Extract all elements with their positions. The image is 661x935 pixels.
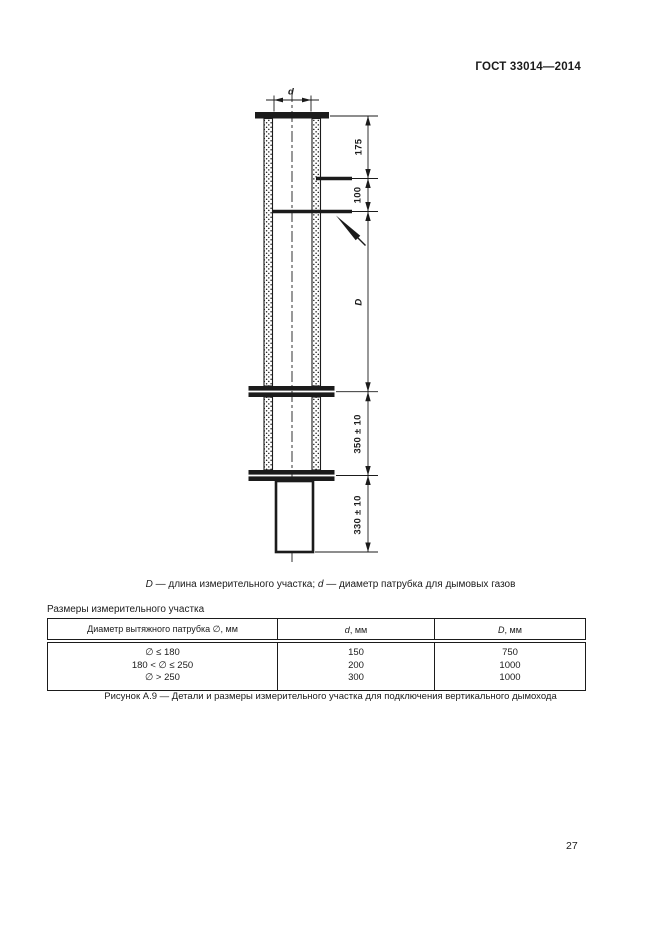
standard-number: ГОСТ 33014—2014 <box>475 61 581 73</box>
mid-flange-pair <box>249 386 335 397</box>
document-page: ГОСТ 33014—2014 <box>0 0 661 935</box>
cell-D: 750 <box>435 641 586 660</box>
cell-diameter: ∅ ≤ 180 <box>48 641 278 660</box>
measurement-section-drawing: d 175 100 D 350 ± 10 330 ± 10 <box>240 85 400 575</box>
leader-arrow <box>336 216 366 246</box>
cell-diameter: ∅ > 250 <box>48 672 278 690</box>
page-number: 27 <box>566 840 578 852</box>
outlet-pipe <box>276 481 313 552</box>
table-title: Размеры измерительного участка <box>47 604 204 615</box>
dim-label-350: 350 ± 10 <box>353 414 364 453</box>
top-flange <box>255 112 329 119</box>
bottom-flange-pair <box>249 470 335 481</box>
cell-D: 1000 <box>435 660 586 673</box>
drawing-legend: D — длина измерительного участка; d — ди… <box>0 579 661 590</box>
cell-d: 200 <box>278 660 435 673</box>
measurement-section-size-table: Диаметр вытяжного патрубка ∅, мм d, мм D… <box>47 618 586 691</box>
legend-var-D: D <box>146 579 153 590</box>
dim-label-D: D <box>353 298 364 305</box>
cell-d: 300 <box>278 672 435 690</box>
dim-label-330: 330 ± 10 <box>353 495 364 534</box>
table-row: 180 < ∅ ≤ 250 200 1000 <box>48 660 586 673</box>
table-row: ∅ > 250 300 1000 <box>48 672 586 690</box>
table-row: ∅ ≤ 180 150 750 <box>48 641 586 660</box>
header-D: D, мм <box>435 619 586 642</box>
dim-label-d: d <box>288 87 294 98</box>
measurement-section-diagram <box>240 85 400 575</box>
header-diameter: Диаметр вытяжного патрубка ∅, мм <box>48 619 278 642</box>
legend-text-d: — диаметр патрубка для дымовых газов <box>323 579 515 590</box>
legend-text-D: — длина измерительного участка; <box>153 579 318 590</box>
table-header-row: Диаметр вытяжного патрубка ∅, мм d, мм D… <box>48 619 586 642</box>
cell-D: 1000 <box>435 672 586 690</box>
cell-diameter: 180 < ∅ ≤ 250 <box>48 660 278 673</box>
header-d: d, мм <box>278 619 435 642</box>
dim-label-100: 100 <box>353 187 364 204</box>
figure-caption: Рисунок А.9 — Детали и размеры измерител… <box>0 691 661 702</box>
cell-d: 150 <box>278 641 435 660</box>
dim-label-175: 175 <box>354 139 365 156</box>
